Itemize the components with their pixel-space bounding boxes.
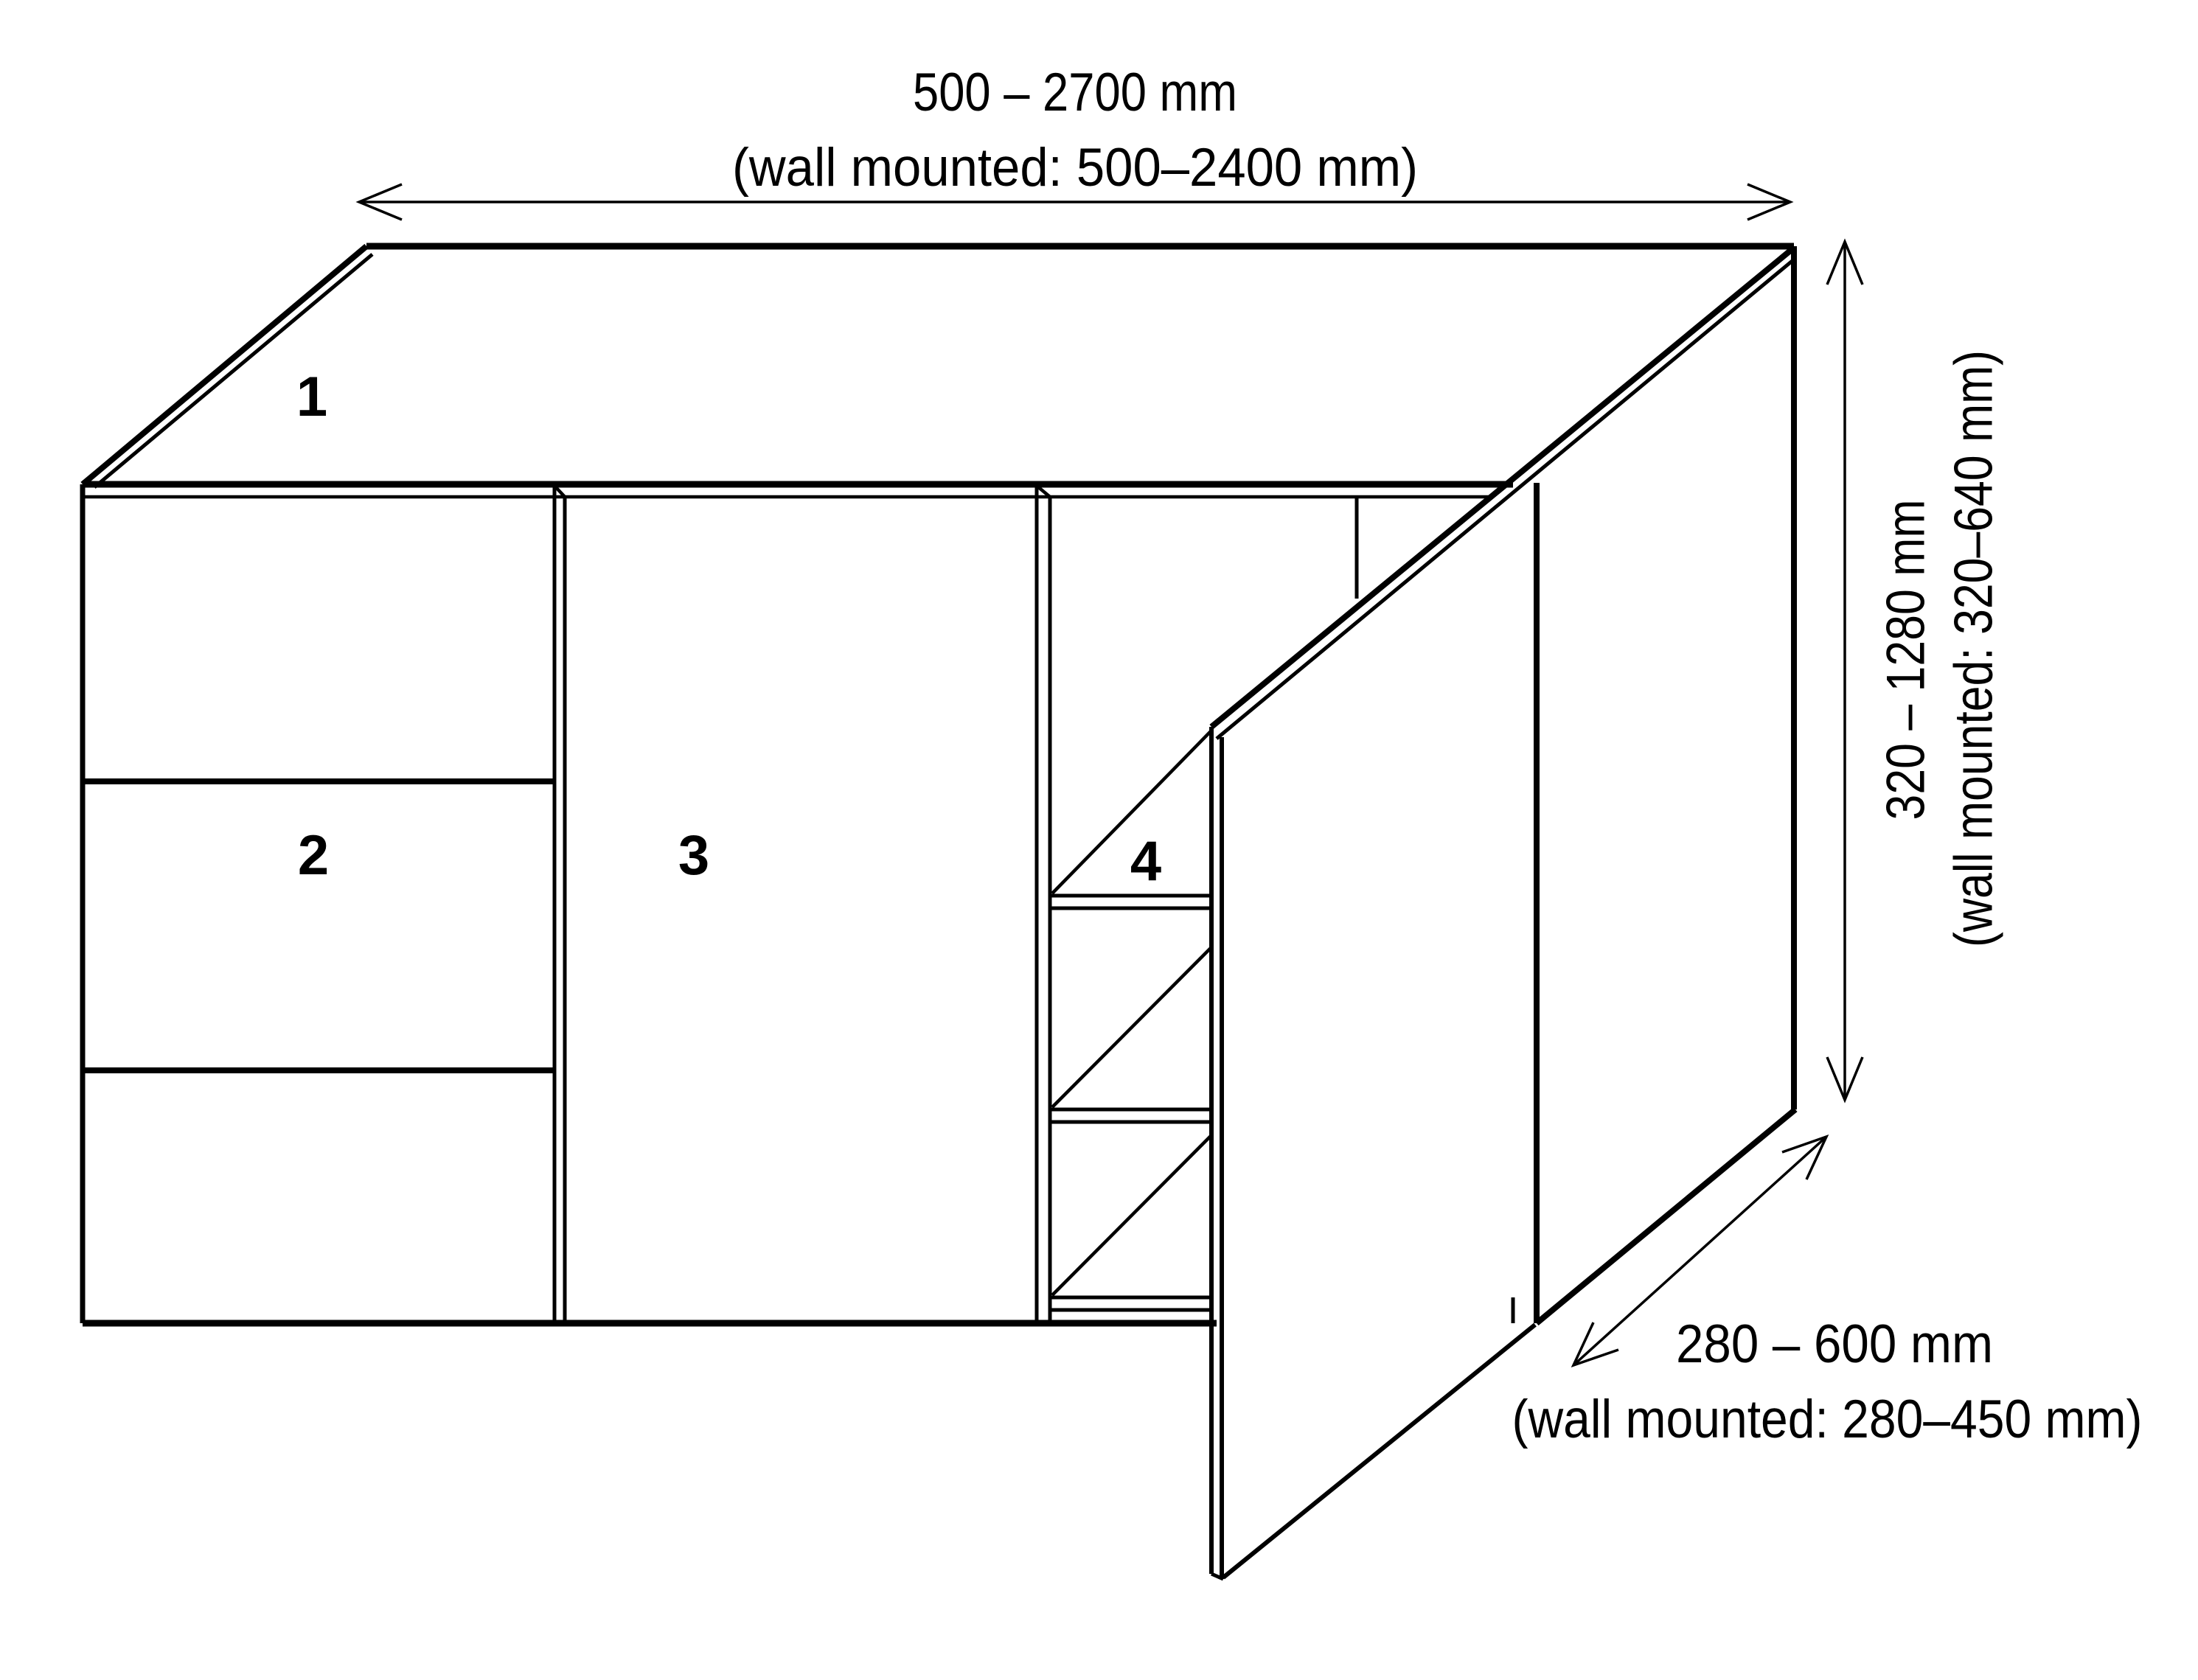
part-label-top-panel: 1 (296, 366, 327, 428)
drawer-section (83, 486, 565, 1323)
depth-range-label: 280 – 600 mm (1676, 1314, 1993, 1374)
width-dimension: 500 – 2700 mm (wall mounted: 500–2400 mm… (359, 63, 1790, 220)
open-door-bottom-edge (1223, 1325, 1535, 1578)
depth-wall-mounted-label: (wall mounted: 280–450 mm) (1512, 1390, 2143, 1449)
part-label-drawer: 2 (298, 824, 329, 887)
part-number-labels: 1 2 3 4 (296, 366, 1161, 893)
closed-door-section (1037, 486, 1050, 1323)
cabinet-dimension-diagram: 500 – 2700 mm (wall mounted: 500–2400 mm… (0, 0, 2198, 1680)
height-dimension: 320 – 1280 mm (wall mounted: 320–640 mm) (1827, 242, 2003, 1100)
diagram-canvas: 500 – 2700 mm (wall mounted: 500–2400 mm… (0, 0, 2198, 1680)
depth-dimension: 280 – 600 mm (wall mounted: 280–450 mm) (1512, 1137, 2143, 1449)
side-panel-bottom-edge (1537, 1109, 1795, 1323)
shelf-compartment (1050, 497, 1357, 1310)
shelf-b-depth-line (1052, 947, 1211, 1107)
part-label-shelf-compartment: 4 (1130, 830, 1161, 893)
width-wall-mounted-label: (wall mounted: 500–2400 mm) (732, 138, 1418, 198)
bottom-shelf-depth-line (1052, 1135, 1211, 1295)
cabinet-carcass (83, 246, 1795, 1323)
width-range-label: 500 – 2700 mm (913, 63, 1237, 122)
height-range-label: 320 – 1280 mm (1876, 500, 1936, 820)
top-left-edge-inner (94, 254, 372, 487)
part-label-door: 3 (678, 824, 709, 887)
height-wall-mounted-label: (wall mounted: 320–640 mm) (1944, 350, 2003, 947)
open-door (1211, 248, 1794, 1579)
open-door-top-edge-inner (1217, 259, 1794, 739)
